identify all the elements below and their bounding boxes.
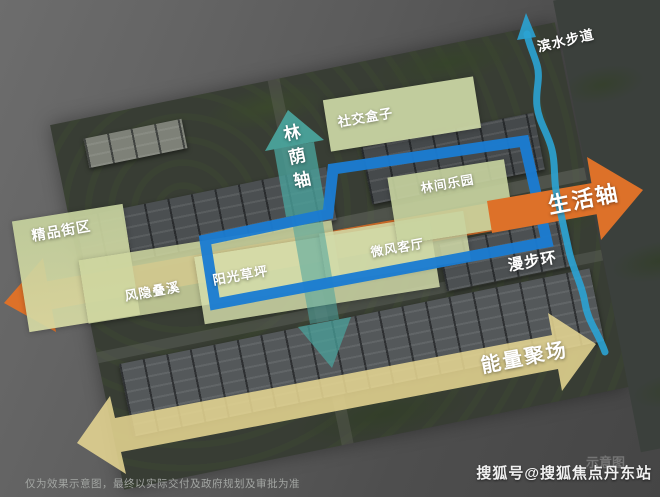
disclaimer-text: 仅为效果示意图，最终以实际交付及政府规划及审批为准 xyxy=(25,476,300,491)
forest-axis-shaft-lower xyxy=(291,211,339,324)
axes-overlay xyxy=(0,0,660,497)
publisher-credit: 搜狐号@搜狐焦点丹东站 xyxy=(476,462,652,483)
waterfront-stream-arrowhead-icon xyxy=(517,13,536,40)
masterplan-canvas: 精品街区 风隐叠溪 阳光草坪 微风客厅 林间乐园 社交盒子 林荫轴 生活轴 漫步… xyxy=(0,0,660,497)
forest-axis-down-arrowhead-icon xyxy=(298,317,351,368)
